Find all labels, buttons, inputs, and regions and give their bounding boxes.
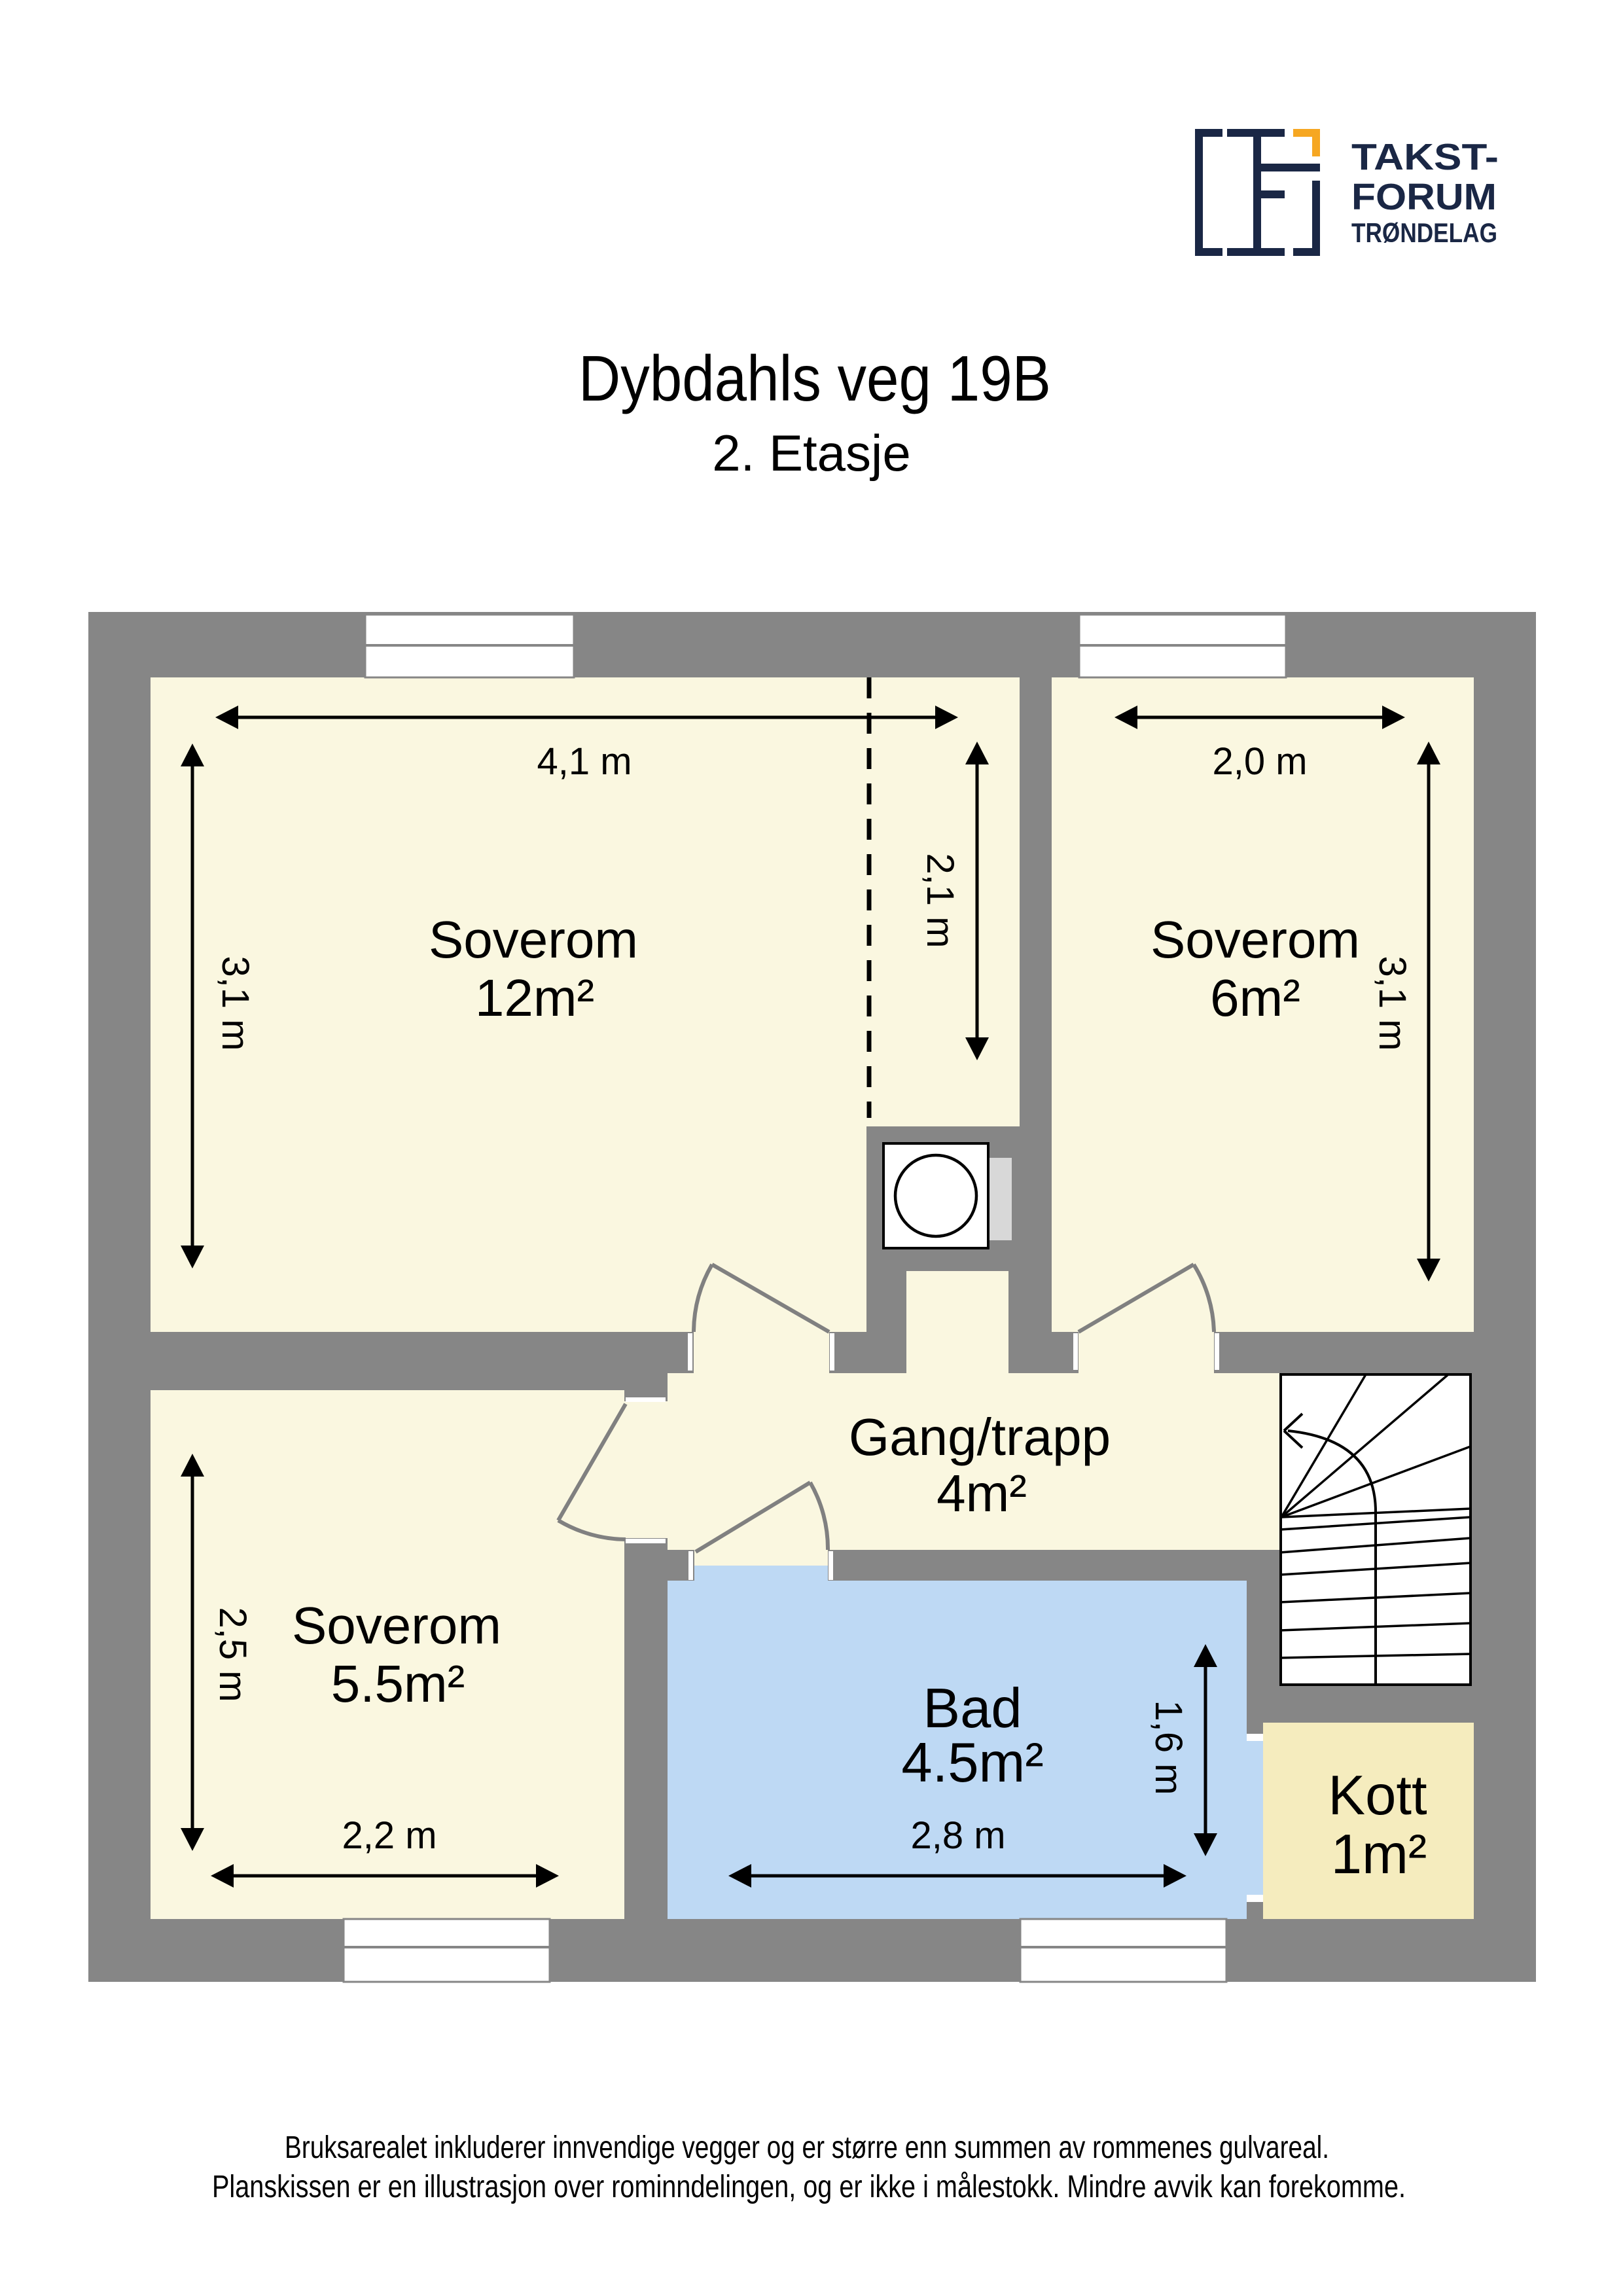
svg-text:4m²: 4m² [936, 1464, 1027, 1522]
svg-text:Soverom: Soverom [292, 1596, 501, 1655]
svg-text:Bruksarealet inkluderer innven: Bruksarealet inkluderer innvendige vegge… [285, 2130, 1329, 2165]
svg-text:2,2 m: 2,2 m [342, 1814, 437, 1857]
svg-text:1m²: 1m² [1331, 1823, 1427, 1886]
svg-text:Kott: Kott [1328, 1765, 1427, 1827]
svg-text:Soverom: Soverom [1150, 910, 1360, 969]
svg-text:2,8 m: 2,8 m [910, 1814, 1005, 1857]
svg-text:2,1 m: 2,1 m [919, 853, 961, 948]
svg-text:3,1 m: 3,1 m [1371, 956, 1414, 1050]
svg-text:6m²: 6m² [1210, 969, 1300, 1027]
svg-text:Dybdahls veg 19B: Dybdahls veg 19B [579, 342, 1051, 414]
svg-text:2. Etasje: 2. Etasje [712, 424, 911, 482]
svg-text:Bad: Bad [923, 1677, 1022, 1740]
svg-text:Gang/trapp: Gang/trapp [849, 1408, 1111, 1466]
svg-text:4.5m²: 4.5m² [901, 1732, 1043, 1794]
svg-text:TRØNDELAG: TRØNDELAG [1351, 217, 1497, 248]
svg-text:2,5 m: 2,5 m [211, 1607, 254, 1702]
svg-text:12m²: 12m² [475, 969, 594, 1027]
svg-text:FORUM: FORUM [1351, 176, 1497, 218]
svg-text:TAKST-: TAKST- [1351, 136, 1499, 178]
svg-text:5.5m²: 5.5m² [331, 1655, 465, 1713]
svg-text:2,0 m: 2,0 m [1212, 740, 1307, 783]
svg-text:Planskissen er en illustrasjon: Planskissen er en illustrasjon over romi… [212, 2170, 1406, 2204]
svg-text:Soverom: Soverom [429, 910, 638, 969]
svg-text:4,1 m: 4,1 m [537, 740, 632, 783]
svg-text:1,6 m: 1,6 m [1147, 1700, 1190, 1795]
svg-text:3,1 m: 3,1 m [214, 956, 257, 1050]
